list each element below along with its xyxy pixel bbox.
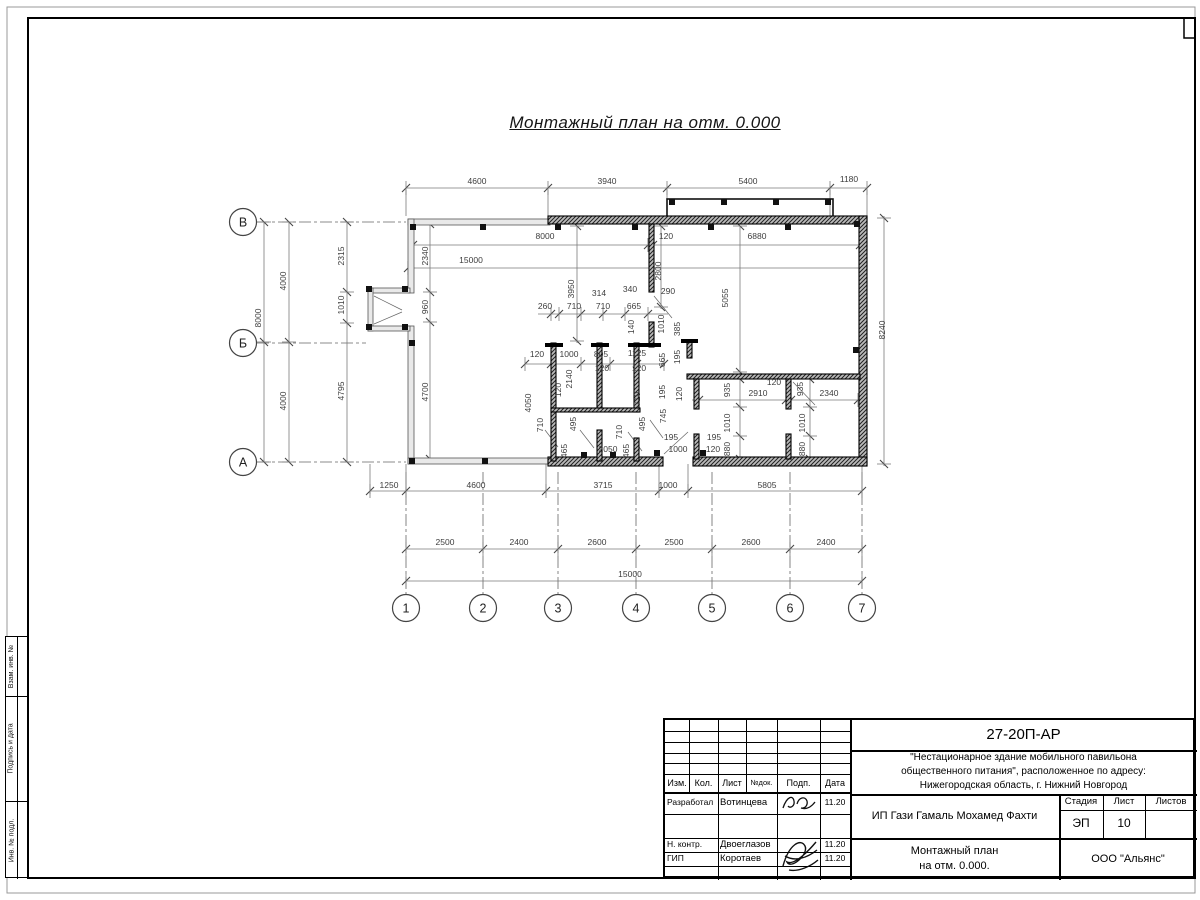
title-block-line xyxy=(1059,794,1061,880)
signature-icon xyxy=(777,834,820,874)
dim-label: 385 xyxy=(672,322,682,336)
dim-label: 465 xyxy=(621,444,631,458)
dim-label: 935 xyxy=(722,383,732,397)
dim-label: 120 xyxy=(595,363,609,373)
axis-bubble-label: А xyxy=(239,455,248,469)
dim-label: 665 xyxy=(657,353,667,367)
dim-label: 195 xyxy=(707,432,721,442)
dim-label: 1010 xyxy=(336,295,346,314)
dim-label: 880 xyxy=(797,442,807,456)
side-stamp-line xyxy=(17,637,18,879)
dim-label: 935 xyxy=(795,382,805,396)
dim-label: 195 xyxy=(657,385,667,399)
dim-label: 805 xyxy=(594,349,608,359)
title-block-line xyxy=(850,794,1197,796)
dim-label: 120 xyxy=(674,387,684,401)
dim-label: 4600 xyxy=(468,176,487,186)
dim-label: 710 xyxy=(632,392,642,406)
dim-label: 745 xyxy=(658,409,668,423)
stamp-cell-inv: Инв. № подл. xyxy=(6,801,17,879)
col-ndok: №док. xyxy=(746,774,777,792)
side-stamp: Взам. инв. № Подпись и дата Инв. № подл. xyxy=(5,636,28,878)
dim-label: 2600 xyxy=(588,537,607,547)
dim-label: 1000 xyxy=(659,480,678,490)
dim-label: 710 xyxy=(567,301,581,311)
drawing-name-line-2: на отм. 0.000. xyxy=(919,859,989,874)
title-block-line xyxy=(665,838,850,839)
stamp-cell-podpis-label: Подпись и дата xyxy=(8,723,15,773)
dim-label: 2400 xyxy=(510,537,529,547)
dim-label: 1125 xyxy=(628,348,647,358)
title-block-line xyxy=(665,731,850,732)
dim-label: 2140 xyxy=(564,369,574,388)
company-name: ООО "Альянс" xyxy=(1059,838,1197,880)
stage-value: ЭП xyxy=(1059,810,1103,838)
title-block-line xyxy=(665,774,850,775)
row-name-gip: Коротаев xyxy=(720,852,778,866)
project-line-3: Нижегородская область, г. Нижний Новгоро… xyxy=(852,779,1195,793)
drawing-name: Монтажный план на отм. 0.000. xyxy=(852,838,1057,880)
dim-label: 120 xyxy=(706,444,720,454)
col-izm: Изм. xyxy=(665,774,689,792)
dim-label: 140 xyxy=(626,320,636,334)
drawing-sheet: 4600394054001180800012068801500031434026… xyxy=(0,0,1200,900)
col-podp: Подп. xyxy=(777,774,820,792)
project-description: "Нестационарное здание мобильного павиль… xyxy=(852,751,1195,794)
axis-bubble-label: 1 xyxy=(403,601,410,615)
dim-label: 880 xyxy=(722,442,732,456)
drawing-title: Монтажный план на отм. 0.000 xyxy=(430,113,860,133)
dim-label: 2340 xyxy=(420,246,430,265)
title-block-line xyxy=(1059,810,1197,811)
axis-bubble-label: 7 xyxy=(859,601,866,615)
dim-label: 120 xyxy=(767,377,781,387)
client-name: ИП Гази Гамаль Мохамед Фахти xyxy=(852,794,1057,838)
col-data: Дата xyxy=(820,774,850,792)
dim-label: 1250 xyxy=(380,480,399,490)
dim-label: 120 xyxy=(659,231,673,241)
dim-label: 465 xyxy=(559,444,569,458)
dim-label: 195 xyxy=(664,432,678,442)
dim-label: 120 xyxy=(553,383,563,397)
title-block-line xyxy=(718,720,719,880)
dim-label: 120 xyxy=(530,349,544,359)
title-block-line xyxy=(665,852,850,853)
axis-bubble-label: Б xyxy=(239,336,247,350)
dim-label: 4795 xyxy=(336,381,346,400)
dim-label: 4000 xyxy=(278,391,288,410)
col-list: Лист xyxy=(718,774,746,792)
dim-label: 8000 xyxy=(536,231,555,241)
dim-label: 15000 xyxy=(459,255,483,265)
dim-label: 8000 xyxy=(253,308,263,327)
dim-label: 4050 xyxy=(523,393,533,412)
title-block-line xyxy=(850,720,852,880)
dim-label: 2500 xyxy=(436,537,455,547)
row-date-ncontrol: 11.20 xyxy=(820,838,850,852)
dim-label: 710 xyxy=(596,301,610,311)
row-role-developer: Разработал xyxy=(667,792,717,814)
axis-bubble-label: 5 xyxy=(709,601,716,615)
sheets-total xyxy=(1145,810,1197,838)
row-name-ncontrol: Двоеглазов xyxy=(720,838,778,852)
title-block-line xyxy=(1145,794,1146,838)
project-line-2: общественного питания", расположенное по… xyxy=(852,765,1195,779)
stamp-cell-vzam-label: Взам. инв. № xyxy=(8,645,15,688)
dim-label: 1000 xyxy=(669,444,688,454)
dim-label: 6880 xyxy=(748,231,767,241)
title-block-line xyxy=(665,792,850,794)
axis-bubble-label: 2 xyxy=(480,601,487,615)
row-date-developer: 11.20 xyxy=(820,792,850,814)
row-date-gip: 11.20 xyxy=(820,852,850,866)
dim-label: 1180 xyxy=(840,174,859,184)
side-stamp-line xyxy=(6,696,29,697)
axis-bubble-label: В xyxy=(239,215,247,229)
dim-label: 2315 xyxy=(336,246,346,265)
axis-bubble-label: 6 xyxy=(787,601,794,615)
dim-label: 5805 xyxy=(758,480,777,490)
dim-label: 4000 xyxy=(278,271,288,290)
dim-label: 665 xyxy=(627,301,641,311)
title-block-line xyxy=(850,838,1197,840)
dim-label: 2600 xyxy=(742,537,761,547)
title-block: 27-20П-АР "Нестационарное здание мобильн… xyxy=(663,718,1195,878)
wall-flanges xyxy=(545,339,698,347)
title-block-line xyxy=(777,720,778,880)
dim-label: 495 xyxy=(637,417,647,431)
sheets-label: Листов xyxy=(1145,794,1197,810)
column-markers xyxy=(366,199,860,464)
stamp-cell-inv-label: Инв. № подл. xyxy=(8,818,15,862)
title-block-line xyxy=(850,750,1197,752)
dim-label: 15000 xyxy=(618,569,642,579)
row-name-developer: Вотинцева xyxy=(720,792,776,814)
dim-label: 2400 xyxy=(817,537,836,547)
dim-label: 260 xyxy=(538,301,552,311)
dim-label: 5055 xyxy=(720,288,730,307)
dim-label: 1000 xyxy=(560,349,579,359)
title-block-line xyxy=(665,814,850,815)
dim-label: 2050 xyxy=(599,444,618,454)
dim-label: 5400 xyxy=(739,176,758,186)
stamp-cell-podpis: Подпись и дата xyxy=(6,696,17,801)
dim-label: 8240 xyxy=(877,320,887,339)
title-block-line xyxy=(665,753,850,754)
dim-label: 4600 xyxy=(467,480,486,490)
title-block-line xyxy=(665,742,850,743)
sheet-number: 10 xyxy=(1103,810,1145,838)
title-block-line xyxy=(820,720,821,880)
dim-label: 710 xyxy=(614,425,624,439)
dim-label: 2800 xyxy=(653,261,663,280)
bearing-walls xyxy=(548,216,867,466)
row-role-ncontrol: Н. контр. xyxy=(667,838,717,852)
dim-label: 1010 xyxy=(656,314,666,333)
dim-label: 3715 xyxy=(594,480,613,490)
drawing-name-line-1: Монтажный план xyxy=(911,844,999,859)
dim-label: 960 xyxy=(420,300,430,314)
dim-label: 1010 xyxy=(722,413,732,432)
row-role-gip: ГИП xyxy=(667,852,717,866)
dim-label: 3940 xyxy=(598,176,617,186)
dim-label: 2500 xyxy=(665,537,684,547)
dim-label: 710 xyxy=(535,418,545,432)
dim-label: 314 xyxy=(592,288,606,298)
loading-ramp xyxy=(667,199,833,218)
axis-bubble-label: 3 xyxy=(555,601,562,615)
axis-bubble-label: 4 xyxy=(633,601,640,615)
dim-label: 3950 xyxy=(566,279,576,298)
stage-label: Стадия xyxy=(1059,794,1103,810)
dim-label: 290 xyxy=(661,286,675,296)
title-block-line xyxy=(665,866,850,867)
project-line-1: "Нестационарное здание мобильного павиль… xyxy=(852,751,1195,765)
dim-label: 340 xyxy=(623,284,637,294)
dim-label: 120 xyxy=(632,363,646,373)
doc-number: 27-20П-АР xyxy=(850,720,1197,750)
dim-label: 4700 xyxy=(420,382,430,401)
signature-icon xyxy=(779,793,819,813)
title-block-line xyxy=(665,763,850,764)
dim-label: 495 xyxy=(568,417,578,431)
dim-label: 1010 xyxy=(797,413,807,432)
side-stamp-line xyxy=(6,801,29,802)
stamp-cell-vzam: Взам. инв. № xyxy=(6,637,17,696)
title-block-line xyxy=(1103,794,1104,838)
dim-label: 2910 xyxy=(749,388,768,398)
col-kol: Кол. xyxy=(689,774,718,792)
dim-label: 2340 xyxy=(820,388,839,398)
sheet-label: Лист xyxy=(1103,794,1145,810)
dim-label: 195 xyxy=(672,350,682,364)
